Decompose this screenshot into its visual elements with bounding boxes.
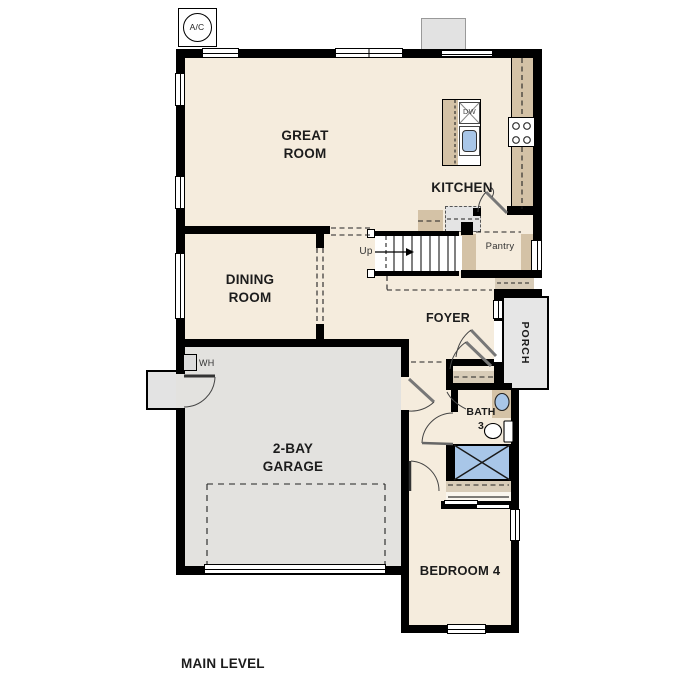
great-room-label: GREAT ROOM — [255, 127, 355, 162]
up-label: Up — [346, 246, 386, 258]
door-swings — [184, 187, 507, 491]
pantry-label: Pantry — [470, 241, 530, 253]
kitchen-label: KITCHEN — [412, 179, 512, 197]
stair-treads — [394, 236, 455, 271]
floor-plan: A/C — [0, 0, 687, 687]
plan-linework — [0, 0, 687, 687]
porch-label: PORCH — [517, 313, 531, 373]
plan-title: MAIN LEVEL — [181, 655, 301, 673]
bath-label: BATH 3 — [451, 406, 511, 433]
garage-label: 2-BAY GARAGE — [243, 440, 343, 475]
bedroom-label: BEDROOM 4 — [400, 562, 520, 580]
foyer-label: FOYER — [408, 311, 488, 326]
dining-room-label: DINING ROOM — [200, 271, 300, 306]
shower-x-icon — [454, 445, 510, 480]
cooktop-burners-icon — [513, 123, 531, 144]
dw-label: DW — [459, 106, 480, 118]
wh-label: WH — [199, 357, 223, 369]
